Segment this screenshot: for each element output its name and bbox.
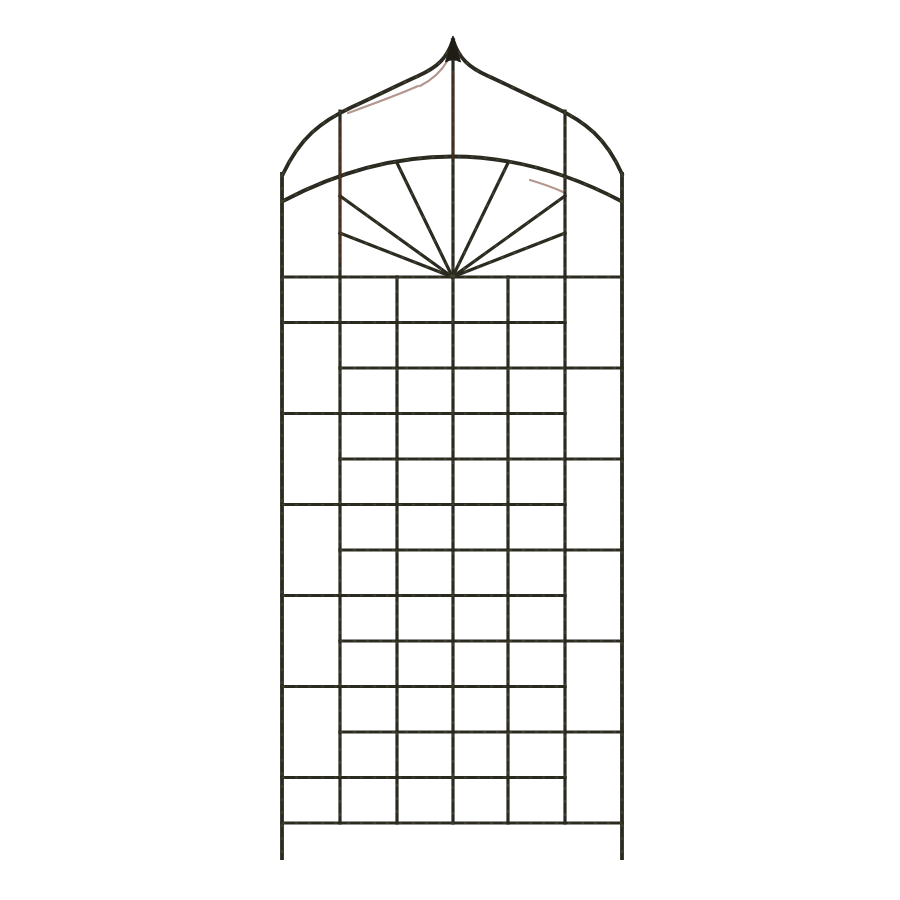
trellis-illustration [0, 0, 900, 900]
product-image [0, 0, 900, 900]
image-background [0, 0, 900, 900]
